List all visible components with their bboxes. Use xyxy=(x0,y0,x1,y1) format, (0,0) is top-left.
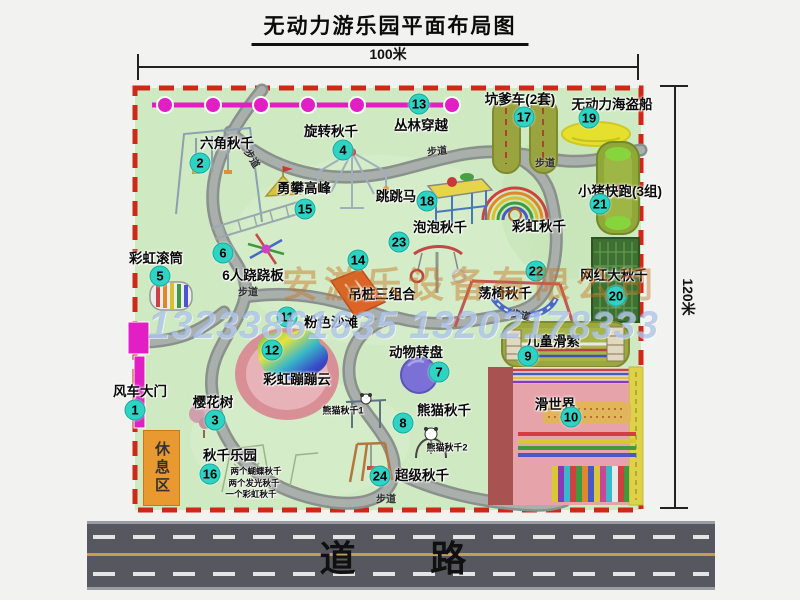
marker-6: 6 xyxy=(213,243,234,264)
marker-12: 12 xyxy=(262,340,283,361)
label-hexagon-swing: 六角秋千 xyxy=(200,132,254,152)
label-super-swing: 超级秋千 xyxy=(395,464,449,484)
note-panda-swing-2: 熊猫秋千2 xyxy=(426,441,467,454)
marker-2: 2 xyxy=(190,153,211,174)
marker-11: 11 xyxy=(277,307,298,328)
marker-5: 5 xyxy=(150,266,171,287)
label-seesaw: 6人跷跷板 xyxy=(222,264,284,284)
label-karts: 坑爹车(2套) xyxy=(485,88,556,108)
road-label: 道 路 xyxy=(303,530,498,582)
label-hanging-piles: 吊桩三组合 xyxy=(348,283,416,303)
marker-13: 13 xyxy=(409,94,430,115)
label-jungle-crossing: 丛林穿越 xyxy=(394,114,448,134)
marker-4: 4 xyxy=(333,140,354,161)
label-swing-chair: 荡椅秋千 xyxy=(478,282,532,302)
walkway-label-6: 步道 xyxy=(376,491,396,506)
label-windmill-gate: 风车大门 xyxy=(113,380,167,400)
label-rainbow-roller: 彩虹滚筒 xyxy=(129,247,183,267)
label-rainbow-swing: 彩虹秋千 xyxy=(512,215,566,235)
label-bubble-swing: 泡泡秋千 xyxy=(413,216,467,236)
marker-15: 15 xyxy=(295,199,316,220)
walkway-label-2: 步道 xyxy=(426,141,447,158)
marker-22: 22 xyxy=(526,261,547,282)
marker-24: 24 xyxy=(370,466,391,487)
marker-23: 23 xyxy=(389,232,410,253)
label-animal-turntable: 动物转盘 xyxy=(389,341,443,361)
marker-8: 8 xyxy=(393,413,414,434)
label-swing-park: 秋千乐园 xyxy=(203,444,257,464)
walkway-label-3: 步道 xyxy=(535,155,555,170)
label-climbing-peak: 勇攀高峰 xyxy=(277,177,331,197)
slide-world-icon xyxy=(488,367,643,505)
marker-14: 14 xyxy=(348,250,369,271)
marker-7: 7 xyxy=(429,362,450,383)
marker-17: 17 xyxy=(514,107,535,128)
label-rotating-swing: 旋转秋千 xyxy=(304,120,358,140)
marker-10: 10 xyxy=(561,407,582,428)
marker-1: 1 xyxy=(125,400,146,421)
marker-18: 18 xyxy=(417,191,438,212)
label-jumping-horse: 跳跳马 xyxy=(376,185,417,205)
marker-19: 19 xyxy=(579,108,600,129)
walkway-label-4: 步道 xyxy=(238,284,258,299)
label-pink-beach: 粉色沙滩 xyxy=(304,311,358,331)
label-rainbow-cloud: 彩虹蹦蹦云 xyxy=(263,368,331,388)
label-cherry-tree: 樱花树 xyxy=(193,391,234,411)
note-panda-swing-1: 熊猫秋千1 xyxy=(322,404,363,417)
rest-area: 休息区 xyxy=(143,430,180,506)
marker-20: 20 xyxy=(606,286,627,307)
note-swing-park-3: 一个彩虹秋千 xyxy=(225,488,276,500)
rest-area-label: 休息区 xyxy=(151,441,172,495)
park-layout-plan: 无动力游乐园平面布局图 100米 120米 xyxy=(0,0,800,600)
road: 道 路 xyxy=(87,521,715,590)
note-swing-park-1: 两个蝴蝶秋千 xyxy=(230,465,281,477)
label-panda-swing: 熊猫秋千 xyxy=(417,399,471,419)
rainbow-roller-icon xyxy=(150,282,192,310)
marker-9: 9 xyxy=(518,346,539,367)
label-big-swing: 网红大秋千 xyxy=(580,264,648,284)
marker-3: 3 xyxy=(205,410,226,431)
marker-21: 21 xyxy=(590,194,611,215)
marker-16: 16 xyxy=(200,464,221,485)
